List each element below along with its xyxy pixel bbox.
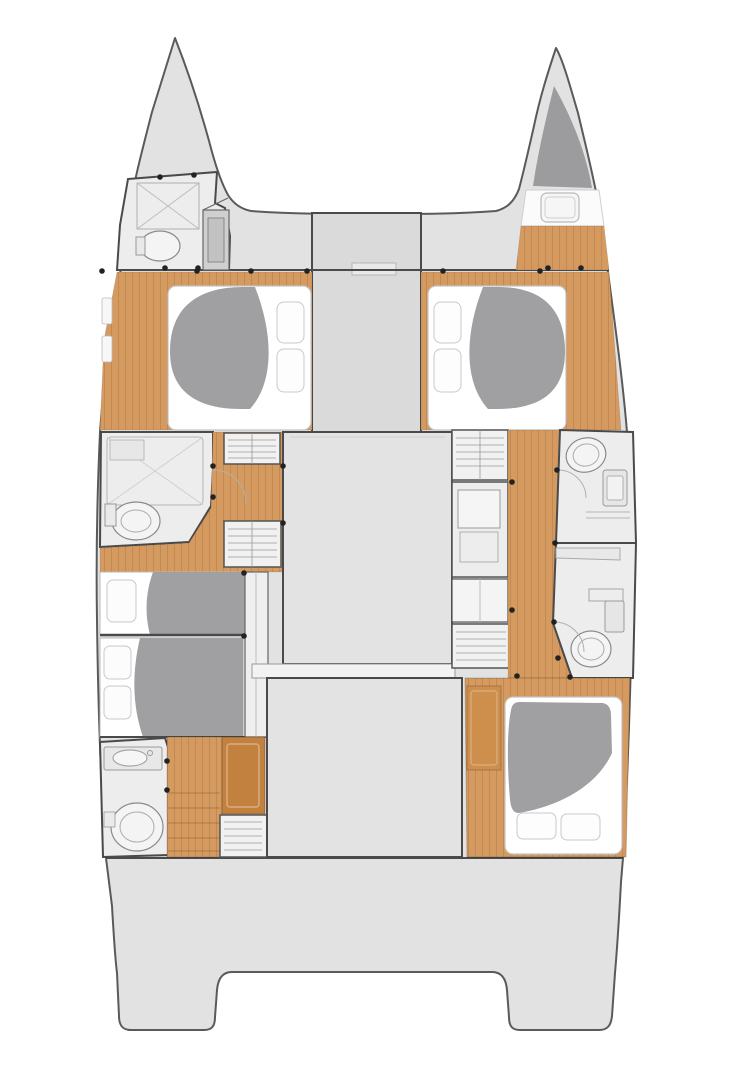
vanity-counter [556, 548, 620, 560]
starboard-aft-cabin [465, 678, 630, 857]
shower-shelf [110, 440, 144, 460]
duvet [147, 572, 245, 635]
starboard-forward-bathroom [556, 430, 636, 543]
cockpit-sill [252, 664, 455, 678]
port-mid-bathroom [100, 432, 213, 547]
hull-shelf [102, 336, 112, 362]
shelf [589, 589, 623, 601]
pillow [434, 349, 461, 392]
drawer-unit [224, 433, 280, 464]
toilet [111, 803, 163, 851]
pillow [277, 349, 304, 392]
floor-plan-page [0, 0, 741, 1080]
toilet-cistern [104, 812, 115, 827]
drawer-unit [452, 430, 508, 480]
pillow [107, 580, 136, 622]
port-companionway-steps [167, 737, 267, 857]
cabinet-unit [452, 482, 508, 577]
pillow [104, 646, 131, 679]
forepeak-sole [516, 226, 609, 270]
floor-plan-canvas [0, 0, 741, 1080]
hull-shelf [102, 298, 112, 324]
port-bow-bathroom [117, 172, 230, 270]
port-aft-berth-2 [100, 638, 268, 737]
wood-panel [467, 686, 501, 770]
port-wardrobe [245, 572, 268, 737]
toilet [571, 631, 611, 667]
drawer-unit [224, 521, 281, 567]
pillow [277, 302, 304, 343]
vanity-cabinet-door [208, 218, 224, 262]
aft-block [267, 678, 462, 857]
duvet [134, 638, 243, 737]
starboard-forward-cabin [421, 272, 621, 430]
sink [113, 750, 147, 766]
drawer-unit [220, 815, 267, 857]
locker-unit [452, 579, 508, 622]
steps-sole [167, 737, 222, 857]
port-aft-berth-1 [100, 572, 245, 635]
pillow [104, 686, 131, 719]
central-column [312, 213, 421, 432]
pillow [517, 813, 556, 839]
starboard-aft-bathroom [553, 543, 636, 678]
sink-basin [607, 476, 623, 500]
sink-cabinet [605, 601, 624, 632]
toilet-cistern [105, 504, 116, 526]
pillow [561, 814, 600, 840]
toilet-cistern [136, 237, 145, 255]
port-forward-cabin [100, 272, 312, 430]
saloon-block [283, 432, 452, 664]
toilet [112, 502, 160, 540]
drawer-unit [452, 624, 510, 668]
starboard-storage-units [452, 430, 510, 668]
pillow [434, 302, 461, 343]
toilet [140, 231, 180, 261]
